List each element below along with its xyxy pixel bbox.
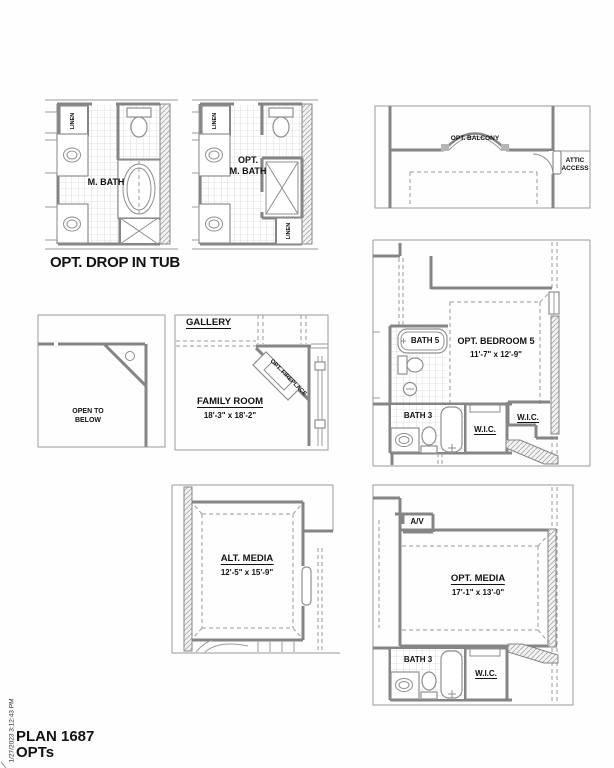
- toilet: [398, 356, 423, 374]
- ceiling-break-dashed: [450, 292, 550, 404]
- wall-hatch: [506, 440, 558, 464]
- wall-hatch: [551, 316, 559, 434]
- label-wic: W.I.C.: [475, 669, 497, 679]
- label-bedroom5-dims: 11'-7" x 12'-9": [470, 350, 522, 359]
- label-opt-bedroom5: OPT. BEDROOM 5: [457, 336, 534, 346]
- label-opt-m-bath: OPT. M. BATH: [230, 155, 267, 177]
- plan-subtitle: OPTs: [16, 745, 94, 761]
- balcony-plan: [375, 106, 590, 208]
- bathtub: [441, 651, 462, 698]
- shower: [120, 218, 158, 244]
- label-open-to-below: OPEN TO BELOW: [72, 407, 103, 425]
- family-room-plan: [175, 315, 328, 450]
- corner-trim-mark: [1, 762, 6, 768]
- floorplan-sheet: M. BATH LINEN OPT. DROP IN TUB OPT. M. B…: [0, 0, 614, 768]
- vanity-sink: [199, 204, 230, 243]
- label-alt-media: ALT. MEDIA: [221, 553, 274, 565]
- label-gallery: GALLERY: [186, 317, 231, 329]
- label-linen: LINEN: [286, 223, 292, 240]
- column: [126, 352, 135, 361]
- door: [302, 567, 311, 605]
- walk-in-shower: [262, 158, 302, 218]
- label-bath3: BATH 3: [404, 411, 432, 420]
- ceiling-break-dashed: [410, 172, 537, 207]
- plan-number: PLAN 1687: [16, 729, 94, 745]
- label-family-room-dims: 18'-3" x 18'-2": [204, 411, 256, 420]
- window: [549, 292, 559, 314]
- label-m-bath: M. BATH: [88, 177, 125, 187]
- wall-hatch: [160, 104, 170, 244]
- plan-title: PLAN 1687 OPTs: [16, 729, 94, 761]
- toilet: [421, 427, 437, 453]
- drop-in-tub: [118, 160, 160, 218]
- label-alt-media-dims: 12'-5" x 15'-9": [221, 568, 273, 577]
- bathtub: [441, 407, 462, 452]
- wall-hatch: [184, 487, 192, 651]
- vanity-sink: [57, 204, 88, 243]
- label-bath5: BATH 5: [411, 336, 439, 345]
- attic-access-door: [533, 151, 561, 174]
- vanity-sink: [199, 134, 230, 176]
- label-attic-access: ATTIC ACCESS: [561, 157, 588, 173]
- toilet: [421, 672, 437, 699]
- print-timestamp: 1/27/2023 3:12:43 PM: [9, 694, 16, 768]
- label-family-room: FAMILY ROOM: [197, 396, 263, 408]
- wall-hatch: [548, 529, 556, 647]
- closet-shelf: [470, 649, 500, 656]
- vanity-sink: [391, 428, 419, 452]
- label-av: A/V: [410, 517, 423, 526]
- caption-opt-drop-in-tub: OPT. DROP IN TUB: [50, 254, 180, 271]
- label-linen: LINEN: [212, 113, 218, 130]
- vanity-sink: [57, 134, 88, 176]
- open-to-below-plan: [38, 315, 165, 447]
- vanity-sink: [391, 672, 419, 699]
- closet-shelf: [470, 405, 500, 412]
- label-opt-media-dims: 17'-1" x 13'-0": [452, 588, 504, 597]
- master-bath-plan: [45, 100, 178, 249]
- label-linen: LINEN: [70, 113, 76, 130]
- label-wic: W.I.C.: [517, 413, 539, 423]
- label-opt-media: OPT. MEDIA: [451, 573, 505, 585]
- label-bath3: BATH 3: [404, 655, 432, 664]
- label-opt-balcony: OPT. BALCONY: [451, 135, 499, 142]
- floor-plan-drawing: [0, 0, 614, 768]
- label-wic: W.I.C.: [474, 425, 496, 435]
